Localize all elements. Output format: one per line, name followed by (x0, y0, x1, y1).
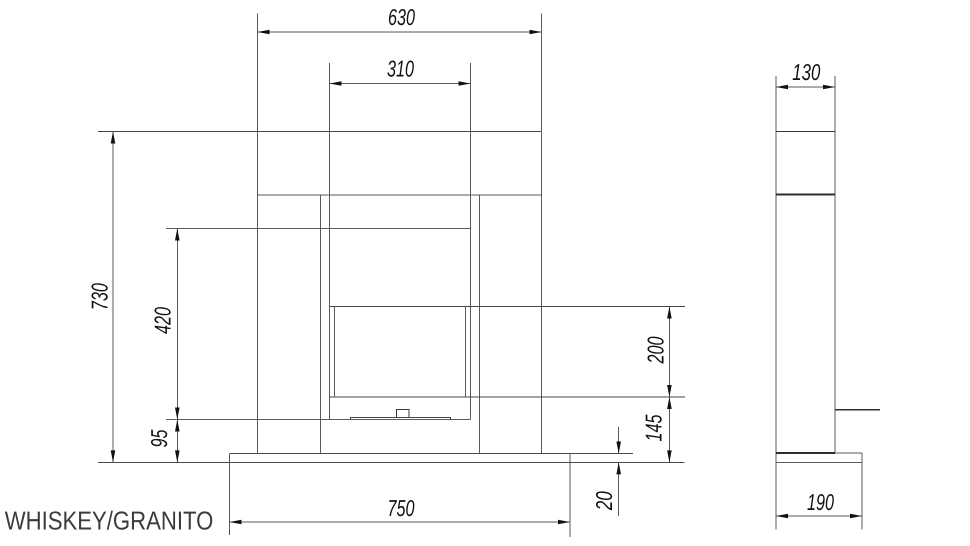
svg-text:730: 730 (87, 283, 113, 310)
svg-text:95: 95 (146, 429, 172, 447)
svg-text:630: 630 (388, 4, 415, 30)
svg-text:190: 190 (807, 489, 834, 515)
svg-text:200: 200 (642, 336, 668, 364)
svg-text:WHISKEY/GRANITO: WHISKEY/GRANITO (5, 505, 214, 535)
svg-text:145: 145 (641, 414, 667, 441)
svg-text:750: 750 (388, 495, 415, 521)
svg-text:420: 420 (150, 307, 176, 334)
svg-text:20: 20 (591, 491, 617, 511)
svg-text:130: 130 (792, 59, 820, 85)
svg-text:310: 310 (387, 56, 414, 82)
